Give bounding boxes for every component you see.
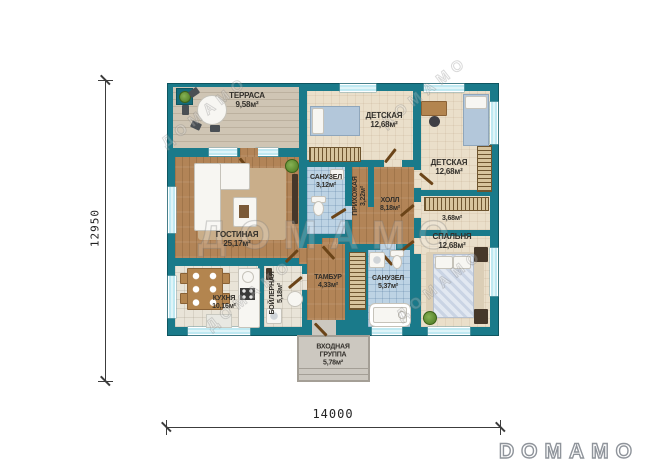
entrance-step-1 [299,368,368,369]
tv-stand [292,174,298,224]
bathtub-drain [398,311,406,319]
terrace-chair-2 [182,105,189,115]
opening-boiler [302,274,307,290]
wall-entryhall-hall [368,167,374,207]
opening-wardrobe [414,202,421,218]
washing-machine-bath [369,252,385,268]
dimension-label-height: 12950 [89,209,102,247]
opening-living-tambour [299,248,307,264]
stove [240,288,255,300]
window-nursery-top [340,84,376,92]
pillow-nursery-right [465,96,487,109]
room-label-tambour: ТАМБУР 4,33м² [314,274,341,290]
wardrobe-room-closet [424,197,489,211]
bedroom-plant [423,311,437,325]
room-label-bedroom: СПАЛЬНЯ 12,68м² [433,233,472,251]
room-label-living: ГОСТИНАЯ 25,17м² [216,231,259,249]
dimension-label-width: 14000 [312,407,353,421]
entrance-step-2 [299,374,368,375]
room-label-entrance-group: ВХОДНАЯ ГРУППА 5,78м² [316,343,349,366]
desk-chair [429,116,440,127]
wardrobe-nursery-right [477,145,492,192]
kitchen-chair-3 [222,273,230,284]
wardrobe-nursery-top [309,147,361,162]
window-nursery-right-top [424,84,464,92]
nightstand-top [474,247,488,262]
dimension-line-height [105,80,106,382]
room-label-hall: ХОЛЛ 8,18м² [380,197,400,213]
living-plant [285,159,299,173]
window-living-left [168,187,176,233]
dimension-line-width [166,427,500,428]
room-label-kitchen: КУХНЯ 10,16м² [212,295,236,311]
nightstand-bottom [474,309,488,324]
closet-hall [349,252,366,310]
kitchen-chair-1 [180,273,188,284]
window-bedroom-right [490,248,498,296]
floor-plan-canvas: ДОМАМО ДОМАМО ДОМАМО ДОМАМО ДОМАМО ТЕРРА… [0,0,648,470]
room-label-terrace: ТЕРРАСА 9,58м² [229,92,265,110]
pillow-right [453,256,471,269]
window-bath-main-bottom [372,327,402,335]
window-kitchen-bottom [188,327,250,335]
kitchen-chair-2 [180,293,188,304]
window-kitchen-left [168,276,176,318]
opening-tambour [322,238,338,244]
window-bedroom-bottom [428,327,470,335]
room-label-boiler: БОЙЛЕРНАЯ 5,18м² [269,271,285,314]
opening-bath-small [345,206,352,220]
pillow-nursery-top [312,108,324,134]
kitchen-sink [242,271,254,283]
logo-domamo: DOMAMO [499,440,639,464]
sofa-side [194,163,221,231]
toilet-bowl-main [392,255,402,269]
coffee-table-tray [239,205,249,218]
toilet-bowl-small [313,201,324,216]
opening-terrace [240,148,258,157]
room-label-entry-hall: ПРИХОЖАЯ 3,22м² [352,176,368,215]
window-living-terrace-1 [209,148,237,156]
boiler-tank [287,291,303,307]
window-living-terrace-2 [256,148,278,156]
room-label-nursery-right: ДЕТСКАЯ 12,68м² [431,159,468,177]
desk [421,101,447,116]
kitchen-mat [206,314,232,328]
window-nursery-right-side [490,102,498,144]
room-label-bath-small: САНУЗЕЛ 3,12м² [310,174,342,190]
room-label-nursery-top: ДЕТСКАЯ 12,68м² [366,112,403,130]
terrace-chair-4 [210,125,220,132]
room-label-wardrobe: 3,68м² [442,215,462,223]
pillow-left [435,256,453,269]
opening-bedroom [414,238,421,254]
terrace-table [197,95,227,125]
room-label-bath-main: САНУЗЕЛ 5,37м² [372,275,404,291]
